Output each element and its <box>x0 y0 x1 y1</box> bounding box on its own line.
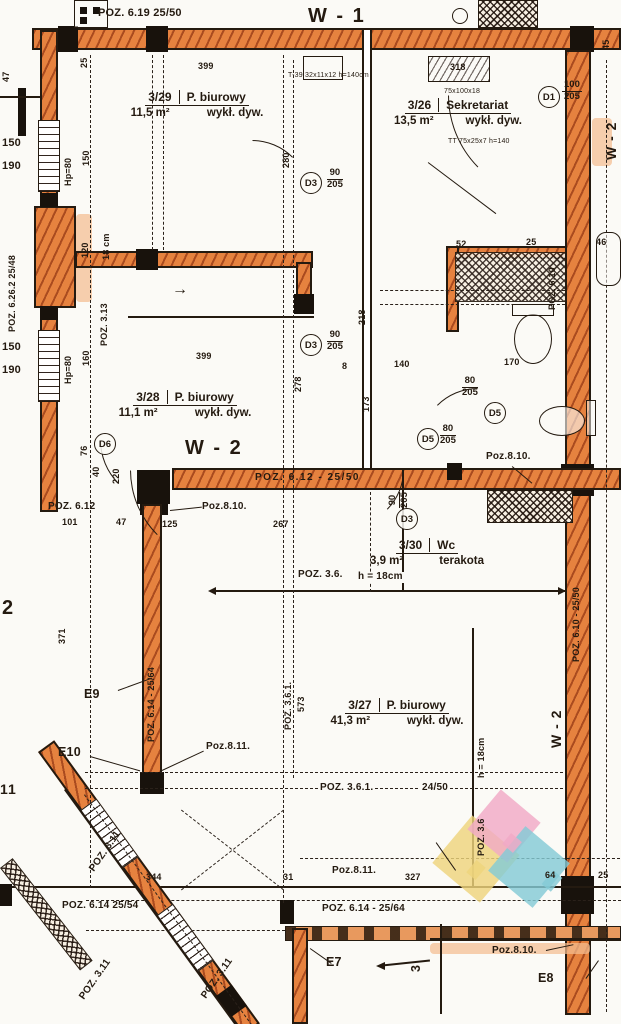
poz-361-v: POZ. 3.6.1. <box>284 682 293 730</box>
door-size-d3c: 90205 <box>388 492 411 508</box>
dim-31: 31 <box>283 873 293 882</box>
dim-101: 101 <box>62 518 78 527</box>
room-name: P. biurowy <box>379 698 446 712</box>
exit-e9: E9 <box>84 688 100 701</box>
room-area: 13,5 m² <box>394 115 434 127</box>
room-number: 3/30 <box>399 538 422 552</box>
dim-hp80-win1: Hp=80 <box>64 158 73 186</box>
dim-371: 371 <box>58 628 67 644</box>
room-finish: wykł. dyw. <box>195 407 251 419</box>
axis-w2-center: W - 2 <box>185 438 243 459</box>
dim-267: 267 <box>273 520 289 529</box>
dim-220: 220 <box>112 468 121 484</box>
dim-399-top: 399 <box>198 62 214 71</box>
room-name: Wc <box>429 538 455 552</box>
poz-6262: POZ. 6.26.2 25/48 <box>8 255 17 332</box>
dim-76: 76 <box>80 446 89 456</box>
window-left-1 <box>38 120 60 192</box>
room-area: 3,9 m² <box>370 555 403 567</box>
section-3-line <box>440 924 442 1014</box>
note-tt: TT 75x25x7 h=140 <box>448 138 510 145</box>
door-tag-d5a: D5 <box>484 402 506 424</box>
note-radiator: 75x100x18 <box>444 88 480 95</box>
dim-40: 40 <box>92 467 101 477</box>
ref-line-poz36 <box>215 590 565 592</box>
dim-280: 280 <box>282 152 291 168</box>
dim-25-bottom: 25 <box>598 871 608 880</box>
room-number: 3/27 <box>348 698 371 712</box>
poz-36-axis: POZ. 3.6 <box>477 818 486 856</box>
dim-45: 45 <box>602 40 611 50</box>
poz-361-label: POZ. 3.6.1. <box>318 783 375 794</box>
section-3-label: 3 <box>410 965 423 972</box>
poz-810-a: Poz.8.10. <box>202 502 247 513</box>
poz-811-a: Poz.8.11. <box>206 742 250 753</box>
door-tag-d5b: D5 <box>417 428 439 450</box>
note-t39: T-39 32x11x12 h=140cm <box>288 72 369 79</box>
exit-e10: E10 <box>58 746 81 759</box>
dim-573: 573 <box>297 696 306 712</box>
dim-25-wc: 25 <box>526 238 536 247</box>
axis-2: 2 <box>2 598 15 619</box>
room-area: 11,5 m² <box>131 107 170 119</box>
dim-160: 160 <box>82 350 91 366</box>
door-size-d5a: 80205 <box>462 376 478 399</box>
dim-150-win2: 150 <box>2 342 21 354</box>
dim-47: 47 <box>116 518 126 527</box>
radiator <box>487 490 573 523</box>
room-finish: wykł. dyw. <box>466 115 522 127</box>
door-tag-d3a: D3 <box>300 172 322 194</box>
door-size-d5b: 80205 <box>440 424 456 447</box>
dim-218: 218 <box>358 309 367 325</box>
door-tag-d3c: D3 <box>396 508 418 530</box>
exterior-wall-right <box>565 50 591 1015</box>
vent-symbol <box>452 8 468 24</box>
dim-150-win1: 150 <box>2 138 21 150</box>
window-left-2 <box>38 330 60 402</box>
dim-318: 318 <box>450 63 466 72</box>
dim-8: 8 <box>342 362 347 371</box>
poz-619-label: POZ. 6.19 25/50 <box>98 8 182 20</box>
poz-810-b: Poz.8.10. <box>486 452 531 463</box>
dim-hp80-win2: Hp=80 <box>64 356 73 384</box>
toilet <box>539 406 585 436</box>
room-label-3-28: 3/28P. biurowy 11,1 m²wykł. dyw. <box>100 388 270 419</box>
dim-18cm: 18 cm <box>102 233 111 260</box>
dim-190-win1: 190 <box>2 161 21 173</box>
poz-610-right: POZ. 6.10 - 25/50 <box>572 587 581 662</box>
room-name: P. biurowy <box>167 390 234 404</box>
poz-612-wall: POZ. 6.12 - 25/50 <box>255 473 360 484</box>
direction-arrow: → <box>172 282 188 299</box>
door-size-d1: 100205 <box>562 80 582 103</box>
dim-64: 64 <box>545 871 555 880</box>
axis-w2-top-right: W - 2 <box>604 122 619 160</box>
poz-614-left: POZ. 6.14 25/54 <box>62 901 138 912</box>
dim-140: 140 <box>394 360 410 369</box>
room-finish: wykł. dyw. <box>407 715 463 727</box>
column <box>146 26 168 52</box>
poz-36-label: POZ. 3.6. <box>296 570 345 581</box>
room-name: Sekretariat <box>438 98 508 112</box>
room-number: 3/26 <box>408 98 431 112</box>
dim-327: 327 <box>405 873 421 882</box>
poz-313: POZ. 3.13 <box>100 303 109 346</box>
poz-612-label: POZ. 6.12 <box>48 502 95 513</box>
door-tag-d3b: D3 <box>300 334 322 356</box>
dim-173: 173 <box>362 396 371 412</box>
room-area: 11,1 m² <box>119 407 158 419</box>
room-label-3-27: 3/27P. biurowy 41,3 m²wykł. dyw. <box>312 696 482 727</box>
door-size-d3a: 90205 <box>327 168 343 191</box>
room-number: 3/29 <box>148 90 171 104</box>
dim-150-axis1: 150 <box>82 150 91 166</box>
dim-125: 125 <box>162 520 178 529</box>
axis-w2-bottom-right: W - 2 <box>549 710 564 748</box>
dim-52: 52 <box>456 240 466 249</box>
door-tag-d1: D1 <box>538 86 560 108</box>
room-label-3-29: 3/29P. biurowy 11,5 m²wykł. dyw. <box>112 88 282 119</box>
room-finish: terakota <box>439 555 484 567</box>
exit-e8: E8 <box>538 972 554 985</box>
room-number: 3/28 <box>136 390 159 404</box>
wall-e7 <box>292 928 308 1024</box>
poz-614-bottom: POZ. 6.14 - 25/64 <box>320 904 407 915</box>
axis-w1-label: W - 1 <box>308 6 366 27</box>
axis-11: 11 <box>0 782 17 797</box>
neighbor-wall-diagonal <box>0 858 93 970</box>
note-h18: h = 18cm <box>356 572 405 583</box>
dim-190-win2: 190 <box>2 365 21 377</box>
room-area: 41,3 m² <box>330 715 370 727</box>
door-size-d3b: 90205 <box>327 330 343 353</box>
room-name: P. biurowy <box>179 90 246 104</box>
dim-399-mid: 399 <box>196 352 212 361</box>
room-label-3-30: 3/30Wc 3,9 m²terakota <box>352 536 502 567</box>
poz-810-c: Poz.8.10. <box>492 946 537 957</box>
pilaster-poz6262 <box>34 206 76 308</box>
poz-361-size: 24/50 <box>420 783 450 794</box>
poz-811-b: Poz.8.11. <box>330 866 378 877</box>
dim-120: 120 <box>81 242 90 258</box>
dim-47-leftedge: 47 <box>2 72 11 82</box>
dim-344: 344 <box>146 873 162 882</box>
exterior-wall-top <box>32 28 621 50</box>
column <box>58 26 78 52</box>
dim-46: 46 <box>596 238 606 247</box>
note-h18-v: h = 18cm <box>477 738 486 778</box>
toilet <box>514 314 552 364</box>
poz-610-top: POZ. 6.10 <box>548 267 557 310</box>
room-label-3-26: 3/26Sekretariat 13,5 m²wykł. dyw. <box>378 96 538 127</box>
exit-e7: E7 <box>326 956 342 969</box>
poz-614-wall: POZ. 6.14 - 25/64 <box>147 667 156 742</box>
room-finish: wykł. dyw. <box>207 107 263 119</box>
door-tag-d6: D6 <box>94 433 116 455</box>
dim-25-topleft: 25 <box>80 58 89 68</box>
shaft-hatch <box>478 0 538 28</box>
dim-170: 170 <box>504 358 520 367</box>
column <box>570 26 594 52</box>
dim-278: 278 <box>294 376 303 392</box>
floor-plan: POZ. 6.19 25/50 W - 1 399 T-39 32x11x12 … <box>0 0 621 1024</box>
